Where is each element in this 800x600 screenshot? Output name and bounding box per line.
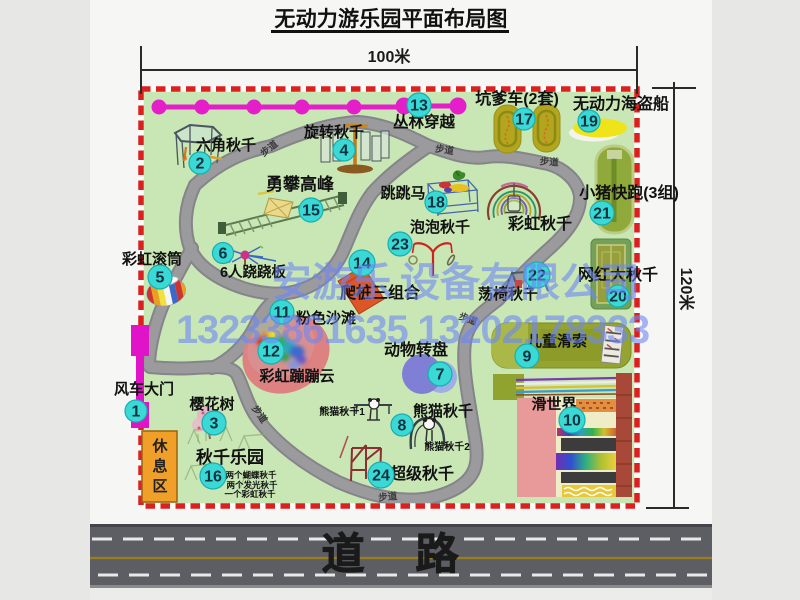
svg-text:区: 区 bbox=[152, 478, 167, 495]
svg-text:13: 13 bbox=[410, 98, 428, 115]
svg-text:7: 7 bbox=[436, 367, 445, 384]
svg-text:15: 15 bbox=[302, 203, 320, 220]
svg-text:彩虹滚筒: 彩虹滚筒 bbox=[121, 250, 182, 268]
svg-text:路: 路 bbox=[416, 531, 460, 579]
svg-text:勇攀高峰: 勇攀高峰 bbox=[266, 174, 335, 194]
svg-text:1: 1 bbox=[132, 404, 141, 421]
svg-text:100米: 100米 bbox=[368, 47, 412, 66]
svg-text:道: 道 bbox=[322, 531, 365, 579]
svg-text:熊猫秋千1: 熊猫秋千1 bbox=[319, 405, 365, 418]
svg-text:17: 17 bbox=[515, 112, 533, 129]
svg-text:18: 18 bbox=[427, 195, 445, 212]
svg-text:跳跳马: 跳跳马 bbox=[380, 184, 425, 202]
svg-text:2: 2 bbox=[196, 156, 205, 173]
svg-text:息: 息 bbox=[152, 457, 167, 475]
svg-text:六角秋千: 六角秋千 bbox=[196, 136, 256, 154]
svg-text:小猪快跑(3组): 小猪快跑(3组) bbox=[579, 183, 679, 202]
svg-text:3: 3 bbox=[210, 416, 219, 433]
svg-text:6: 6 bbox=[219, 246, 228, 263]
svg-text:一个彩虹秋千: 一个彩虹秋千 bbox=[224, 489, 276, 499]
svg-text:风车大门: 风车大门 bbox=[114, 380, 174, 398]
svg-text:泡泡秋千: 泡泡秋千 bbox=[410, 218, 470, 236]
svg-text:5: 5 bbox=[156, 270, 165, 287]
svg-text:熊猫秋千2: 熊猫秋千2 bbox=[424, 440, 470, 453]
svg-text:无动力游乐园平面布局图: 无动力游乐园平面布局图 bbox=[274, 7, 507, 31]
svg-text:步道: 步道 bbox=[539, 155, 559, 168]
svg-text:彩虹秋千: 彩虹秋千 bbox=[507, 214, 572, 233]
svg-text:超级秋千: 超级秋千 bbox=[389, 464, 454, 483]
svg-text:16: 16 bbox=[204, 469, 222, 486]
svg-text:两个蝴蝶秋千: 两个蝴蝶秋千 bbox=[225, 470, 277, 480]
svg-text:步道: 步道 bbox=[378, 490, 398, 504]
svg-text:4: 4 bbox=[340, 143, 349, 160]
svg-text:樱花树: 樱花树 bbox=[189, 395, 234, 413]
svg-text:23: 23 bbox=[391, 237, 409, 254]
svg-text:24: 24 bbox=[372, 468, 390, 485]
svg-text:秋千乐园: 秋千乐园 bbox=[196, 447, 264, 467]
svg-text:120米: 120米 bbox=[677, 268, 696, 312]
svg-text:安游乐 设备有限公司: 安游乐 设备有限公司 bbox=[272, 261, 640, 305]
svg-text:坑爹车(2套): 坑爹车(2套) bbox=[475, 89, 559, 108]
svg-text:10: 10 bbox=[563, 413, 581, 430]
svg-text:8: 8 bbox=[398, 418, 407, 435]
svg-text:13233861635 13202178333: 13233861635 13202178333 bbox=[176, 308, 649, 352]
svg-text:熊猫秋千: 熊猫秋千 bbox=[413, 402, 473, 420]
svg-text:休: 休 bbox=[151, 437, 168, 455]
svg-text:旋转秋千: 旋转秋千 bbox=[303, 123, 364, 141]
svg-text:彩虹蹦蹦云: 彩虹蹦蹦云 bbox=[258, 367, 334, 385]
svg-text:19: 19 bbox=[580, 114, 598, 131]
svg-text:21: 21 bbox=[593, 206, 611, 223]
